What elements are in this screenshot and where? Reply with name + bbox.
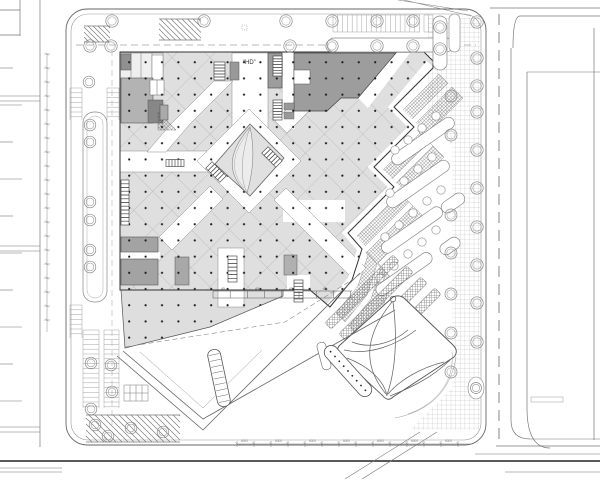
svg-text:8000: 8000 bbox=[343, 439, 350, 443]
svg-text:8000: 8000 bbox=[445, 439, 452, 443]
svg-text:40: 40 bbox=[255, 287, 259, 291]
svg-text:40: 40 bbox=[221, 287, 225, 291]
svg-text:40: 40 bbox=[289, 287, 293, 291]
svg-text:“HD”: “HD” bbox=[243, 60, 256, 66]
svg-text:8000: 8000 bbox=[377, 439, 384, 443]
svg-text:40: 40 bbox=[323, 287, 327, 291]
svg-text:8000: 8000 bbox=[275, 439, 282, 443]
svg-text:8000: 8000 bbox=[241, 439, 248, 443]
svg-text:8000: 8000 bbox=[411, 439, 418, 443]
svg-text:8000: 8000 bbox=[309, 439, 316, 443]
